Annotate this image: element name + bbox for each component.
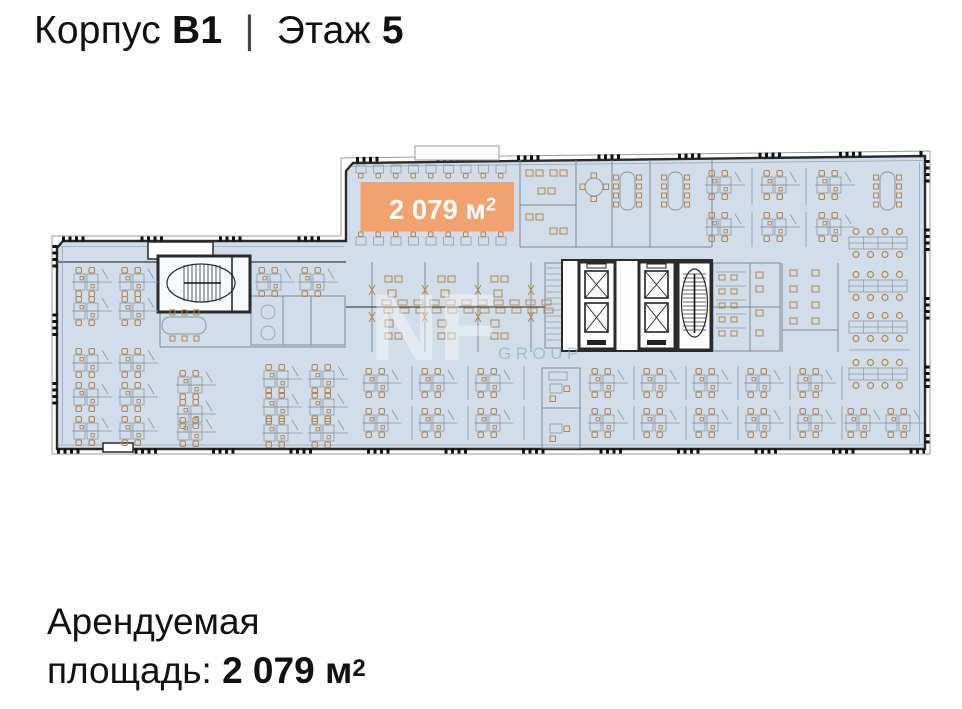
svg-text:GROUP: GROUP	[498, 344, 583, 363]
svg-text:2 079 м2: 2 079 м2	[389, 194, 496, 226]
svg-text:NF: NF	[370, 275, 497, 381]
